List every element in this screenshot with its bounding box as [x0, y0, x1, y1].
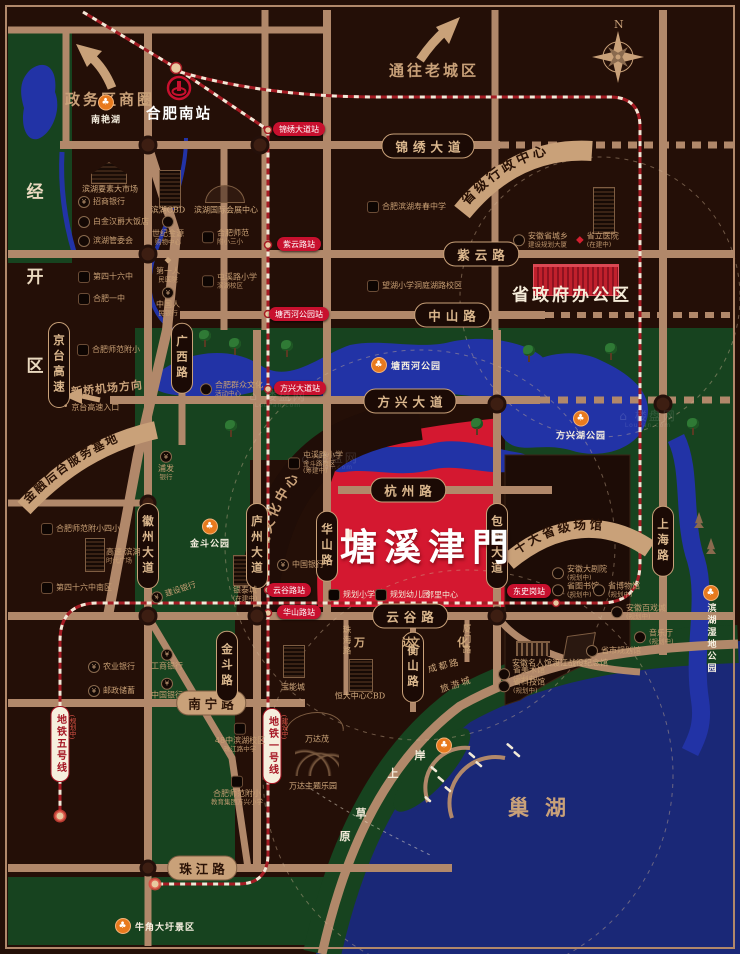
poi-yintai-city: 银泰城(在建中) [233, 585, 258, 602]
poi-bank-of-china-south: ¥中国银行 [151, 678, 183, 701]
circle-icon [513, 234, 525, 246]
road-ziyun-road: 紫云路 [443, 242, 519, 267]
station-tangxihe-park: 塘西河公园站 [269, 307, 329, 321]
beach-char-shang: 上 [388, 765, 399, 781]
park-binhu-wetland: ♣滨湖湿地公园 [703, 585, 719, 675]
school-icon [202, 231, 214, 243]
circle-icon [586, 645, 598, 657]
building-wanda-mao [286, 712, 347, 731]
poi-wanda-theme-park: 万达主题乐园 [289, 781, 337, 792]
hefei-south-station-label: 合肥南站 [146, 103, 212, 124]
poi-anhui-grand-theater: 安徽大剧院(规划中) [552, 564, 607, 581]
road-zhongshan-road: 中山路 [414, 303, 490, 328]
gov-office-label: 省政府办公区 [512, 281, 632, 306]
poi-agri-bank: ¥农业银行 [88, 661, 135, 673]
school-icon [77, 344, 89, 356]
circle-icon [200, 383, 212, 395]
circle-icon [78, 216, 90, 228]
dot-icon: • [63, 404, 68, 413]
building-binhu-market [91, 162, 127, 184]
beach-char-an: 岸 [415, 747, 426, 763]
bank-icon: ¥ [149, 590, 164, 605]
park-tangxihe: ♣塘西河公园 [371, 357, 441, 373]
bank-icon: ¥ [88, 661, 100, 673]
poi-binhu-shouchun-school: 合肥滨湖寿春中学 [367, 201, 446, 213]
school-icon [367, 280, 379, 292]
bank-icon: ¥ [161, 678, 173, 690]
district-char-kai: 开 [27, 263, 44, 288]
poi-no46-south-campus: 第四十六中南区 [41, 582, 112, 594]
station-yungu-road: 云谷路站 [267, 583, 311, 597]
poi-baoneng-city: 宝能城 [281, 682, 305, 693]
poi-no46-middle-school: 第四十六中 [78, 271, 133, 283]
road-fangxing-avenue: 方兴大道 [363, 389, 456, 414]
poi-first-people-hospital: ◆第一人民医院 [156, 256, 180, 283]
poi-hengda-cbd: 恒大中心CBD [335, 691, 385, 702]
poi-gaosu-times-plaza: 高速·滨湖时代广场 [106, 547, 141, 564]
chengdu-road-label: 成都路 [426, 655, 461, 676]
poi-provincial-science-museum: 省科技馆(规划中) [498, 677, 545, 694]
poi-bank-of-china-north: ¥中国银行 [277, 559, 324, 571]
project-logo-seal [346, 530, 352, 539]
road-jingtai-expressway: 京台高速 [48, 322, 70, 408]
building-convention-center [205, 185, 245, 203]
xiamen-road-label: 厦门路 [460, 624, 472, 656]
poi-normal-fangxing-primary: 合肥师范附小教育集团方兴小学 [211, 776, 263, 806]
road-shanghai-road: 上海路 [652, 506, 674, 577]
park-tree-icon: ♣ [573, 411, 589, 427]
park-jindou: ♣金斗公园 [190, 519, 230, 550]
circle-icon [634, 631, 646, 643]
tree-127 [470, 418, 484, 436]
building-provincial-hospital [593, 187, 615, 234]
old-town-label: 通往老城区 [389, 60, 479, 81]
tree-121 [228, 338, 242, 356]
poi-planned-kindergarten: 规划幼儿园 [375, 589, 430, 601]
poi-dujiang-memorial: 渡江战役纪念馆 [552, 658, 608, 669]
lvyoucheng-label: 旅游城 [438, 673, 473, 696]
poi-people-bank-china: ¥中国人民银行 [156, 287, 180, 317]
circle-icon [498, 680, 510, 692]
poi-binhu-market: 滨湖要素大市场 [82, 184, 138, 195]
park-nanyanhu: ♣南艳湖 [91, 95, 121, 126]
tree-124 [604, 343, 618, 361]
pine-129 [706, 538, 716, 554]
bank-icon: ¥ [78, 196, 90, 208]
poi-neighborhood-center: 邻里中心 [426, 590, 458, 601]
district-char-qu: 区 [27, 352, 44, 377]
poi-normal-fourth-primary: 合肥师范附小四小 [41, 523, 120, 535]
poi-hefei-normal-primary: 合肥师范附小 [77, 344, 140, 356]
poi-postal-savings: ¥邮政储蓄 [88, 685, 135, 697]
district-char-jing: 经 [27, 178, 44, 203]
station-dongshigang: 东史岗站 [507, 584, 551, 598]
park-anshang-caoyuan-icon: ♣ [436, 733, 452, 754]
diamond-icon: ◆ [165, 256, 172, 265]
school-icon [41, 523, 53, 535]
poi-pufa-bank: ¥浦发银行 [158, 451, 174, 481]
wm-131: ⌂ 楼盘网LouPan.com [301, 452, 358, 472]
park-niujiao-scenic: ♣牛角大圩景区 [115, 918, 195, 934]
park-tree-icon: ♣ [371, 357, 387, 373]
school-icon [234, 723, 246, 735]
park-tree-icon: ♣ [202, 519, 218, 535]
building-hengda-cbd [349, 659, 373, 692]
poi-anhui-planning-tower: 安徽省城乡建设规划大厦 [513, 231, 568, 248]
poi-zhaoshang-bank: ¥招商银行 [78, 196, 125, 208]
poi-binhu-cbd: 滨湖CBD [151, 205, 185, 216]
road-jindou-road: 金斗路 [216, 631, 238, 702]
school-icon [202, 275, 214, 287]
poi-provincial-hospital: ◆省立医院(在建中) [576, 231, 619, 248]
wm-130: ⌂ 楼盘网LouPan.com [249, 390, 306, 410]
poi-tunxi-primary-binhu: 屯溪路小学滨湖校区 [202, 272, 257, 289]
building-times-plaza [85, 538, 105, 572]
diamond-icon: ◆ [576, 235, 584, 245]
poi-concert-hall: 音乐厅(规划中) [634, 628, 674, 645]
poi-binhu-committee: 滨湖管委会 [78, 235, 133, 247]
bank-icon: ¥ [277, 559, 289, 571]
road-huizhou-avenue: 徽州大道 [137, 503, 159, 589]
building-binhu-cbd [159, 170, 181, 208]
bank-icon: ¥ [160, 451, 172, 463]
poi-jingtai-entrance: •京台高速入口 [63, 403, 119, 413]
park-tree-icon: ♣ [703, 585, 719, 601]
poi-hefei-no1-school: 合肥一中 [78, 293, 125, 305]
building-roller-coaster [295, 749, 339, 776]
circle-icon [552, 584, 564, 596]
school-icon [231, 776, 243, 788]
airport-direction-label: 新桥机场方向 [70, 376, 143, 399]
bank-icon: ¥ [162, 287, 174, 299]
poi-provincial-library: 省图书馆(规划中) [552, 581, 599, 598]
poi-baijinhanjue-hotel: 白金汉爵大饭店 [78, 216, 149, 228]
circle-icon [593, 584, 605, 596]
poi-no48-binhu-campus: 48中滨湖校区珠江路中学 [215, 723, 265, 753]
station-ziyun-road: 紫云路站 [277, 237, 321, 251]
metro-line5-status: (规划中) [67, 715, 77, 740]
school-icon [367, 201, 379, 213]
park-tree-icon: ♣ [436, 738, 452, 754]
circle-icon [162, 216, 174, 228]
circle-icon [78, 235, 90, 247]
tree-120 [198, 330, 212, 348]
map-labels-layer: 锦绣大道紫云路中山路方兴大道杭州路云谷路南宁路珠江路京台高速广西路徽州大道庐州大… [0, 0, 740, 954]
poi-icbc-bank: ¥工商银行 [151, 649, 183, 672]
building-baoneng-city [283, 645, 305, 678]
park-fangxinghu: ♣方兴湖公园 [556, 411, 606, 442]
wm-132: ⌂ 楼盘网LouPan.com [619, 410, 676, 430]
location-map: 省级行政中心 金融后台服务基地 环湖文化中心 十大省级场馆 N [0, 0, 740, 954]
station-huashan-road: 华山路站 [277, 605, 321, 619]
school-icon [375, 589, 387, 601]
school-icon [288, 457, 300, 469]
station-jinxiu-avenue: 锦绣大道站 [273, 122, 325, 136]
tree-123 [522, 345, 536, 363]
beach-char-cao: 草 [356, 805, 367, 821]
circle-icon [552, 567, 564, 579]
poi-city-planning-hall: 省市规划馆 [586, 645, 641, 657]
school-icon [41, 582, 53, 594]
poi-provincial-museum: 省博物馆(规划中) [593, 581, 640, 598]
building-celebrity-hall [516, 641, 550, 656]
road-jinxiu-avenue: 锦绣大道 [381, 134, 474, 159]
park-tree-icon: ♣ [98, 95, 114, 111]
poi-planned-primary-school: 规划小学 [328, 589, 375, 601]
road-hangzhou-road: 杭州路 [370, 478, 446, 503]
poi-wanda-mao: 万达茂 [305, 734, 329, 745]
road-zhujiang-road: 珠江路 [167, 856, 237, 881]
beach-char-yuan: 原 [340, 828, 351, 844]
road-yungu-road: 云谷路 [372, 604, 448, 629]
poi-binhu-convention-center: 滨湖国际会展中心 [194, 205, 258, 216]
circle-icon [611, 606, 623, 618]
metro-line1-status: (建设中) [279, 715, 289, 740]
pine-128 [694, 512, 704, 528]
school-icon [78, 271, 90, 283]
project-logo: 塘溪津門 [340, 517, 516, 571]
bank-icon: ¥ [161, 649, 173, 661]
road-guangxi-road: 广西路 [171, 323, 193, 394]
poi-shijijinyuan-mall: 世纪金源购物中心 [152, 216, 184, 246]
tree-126 [224, 420, 238, 438]
school-icon [328, 589, 340, 601]
road-luzhou-avenue: 庐州大道 [246, 503, 268, 589]
bank-icon: ¥ [88, 685, 100, 697]
tree-122 [280, 340, 294, 358]
tree-125 [686, 418, 700, 436]
poi-hefei-normal-third-primary: 合肥师范附小三小 [202, 228, 249, 245]
chaohu-label: 巢湖 [508, 792, 582, 822]
poi-wanghu-primary: 望湖小学洞庭湖路校区 [367, 280, 462, 292]
school-icon [78, 293, 90, 305]
park-tree-icon: ♣ [115, 918, 131, 934]
zhuhai-road-label: 珠海路 [340, 625, 352, 657]
poi-anhui-opera-city: 安徽百戏城(规划中) [611, 603, 666, 620]
